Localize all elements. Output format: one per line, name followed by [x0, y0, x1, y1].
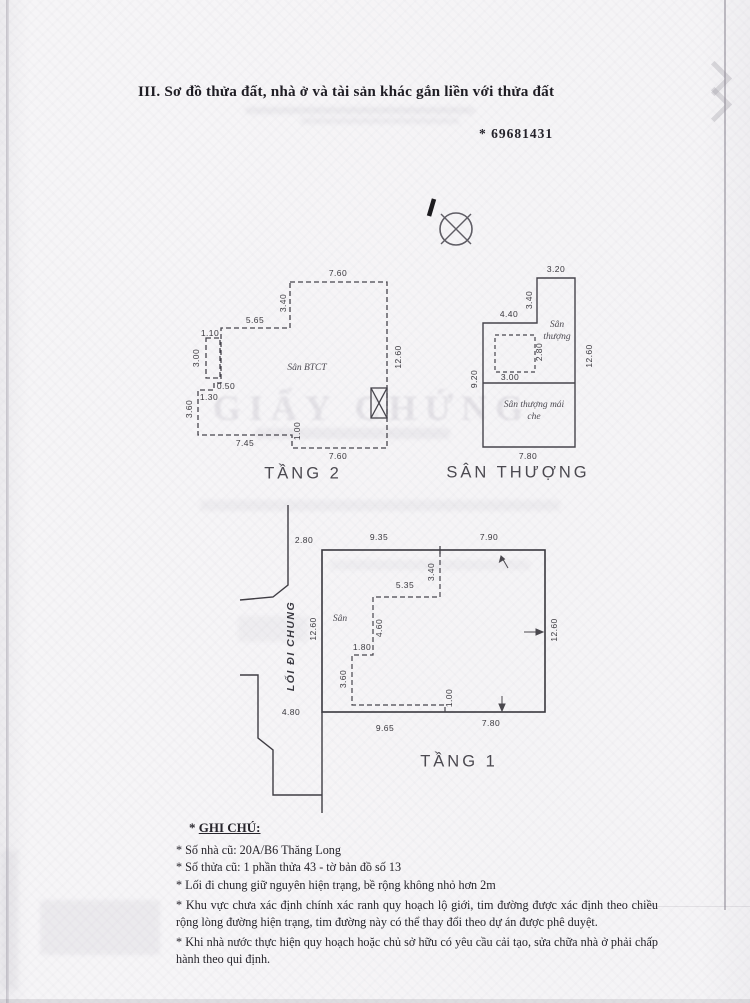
dim-label: 3.40 — [524, 291, 534, 309]
dim-label: 1.10 — [201, 328, 219, 338]
scanned-certificate-page: GIẤY CHỨNG III. Sơ đồ thửa đất, nhà ở và… — [0, 0, 750, 1003]
dim-label: 5.65 — [246, 315, 264, 325]
dim-label: 7.45 — [236, 438, 254, 448]
dim-label: 4.80 — [282, 707, 300, 717]
dim-label: 1.00 — [444, 689, 454, 707]
dim-label: 3.40 — [278, 294, 288, 312]
dim-label: 7.80 — [482, 718, 500, 728]
dim-label: 12.60 — [584, 344, 594, 367]
dim-label: 5.35 — [396, 580, 414, 590]
dim-label: 7.60 — [329, 451, 347, 461]
notes-section: * GHI CHÚ: * Số nhà cũ: 20A/B6 Thăng Lon… — [176, 820, 658, 968]
plan-title-san-thuong: SÂN THƯỢNG — [446, 464, 589, 483]
dim-label: 3.40 — [426, 563, 436, 581]
dim-label: 4.60 — [374, 619, 384, 637]
notes-heading: * GHI CHÚ: — [189, 820, 658, 837]
dim-label: 3.20 — [547, 264, 565, 274]
dim-label: 9.20 — [469, 370, 479, 388]
pointer-arrows — [499, 556, 543, 711]
dim-label: 1.00 — [292, 422, 302, 440]
dim-label: 7.90 — [480, 532, 498, 542]
dim-label: 12.60 — [308, 617, 318, 640]
note-item: * Khu vực chưa xác định chính xác ranh q… — [176, 897, 658, 930]
dim-label: 7.60 — [329, 268, 347, 278]
plan-tang2-stair-hatch — [371, 388, 387, 418]
plan-title-tang2: TẦNG 2 — [264, 465, 342, 484]
alley-boundary — [240, 505, 322, 813]
area-label-san-thuong-mai-che: Sân thượng mái che — [502, 400, 566, 424]
dim-label: 3.60 — [184, 400, 194, 418]
alley-label: LỐI ĐI CHUNG — [285, 601, 297, 691]
notes-heading-text: GHI CHÚ: — [199, 820, 261, 835]
note-item: * Lối đi chung giữ nguyên hiện trạng, bề… — [176, 877, 658, 894]
dim-label: 9.65 — [376, 723, 394, 733]
dim-label: 3.60 — [338, 670, 348, 688]
plan-santhuong-skylight — [495, 335, 535, 372]
dim-label: 12.60 — [549, 618, 559, 641]
note-item: * Số nhà cũ: 20A/B6 Thăng Long — [176, 842, 658, 859]
dim-label: 1.80 — [353, 642, 371, 652]
dim-label: 4.40 — [500, 309, 518, 319]
note-item: * Số thửa cũ: 1 phần thửa 43 - tờ bản đồ… — [176, 859, 658, 876]
compass-icon — [429, 199, 472, 245]
dim-label: 2.80 — [295, 535, 313, 545]
notes-heading-star: * — [189, 820, 196, 835]
area-label-san-btct: Sân BTCT — [287, 363, 326, 375]
area-label-san: Sân — [333, 614, 347, 626]
dim-label: 3.00 — [191, 349, 201, 367]
dim-label: 1.30 — [200, 392, 218, 402]
note-item: * Khi nhà nước thực hiện quy hoạch hoặc … — [176, 934, 658, 967]
dim-label: 0.50 — [217, 381, 235, 391]
area-label-san-thuong: Sân thượng — [537, 320, 577, 344]
dim-label: 3.00 — [501, 372, 519, 382]
dim-label: 12.60 — [393, 345, 403, 368]
plan-title-tang1: TẦNG 1 — [420, 753, 498, 772]
dim-label: 2.80 — [534, 343, 544, 361]
dim-label: 7.80 — [519, 451, 537, 461]
dim-label: 9.35 — [370, 532, 388, 542]
